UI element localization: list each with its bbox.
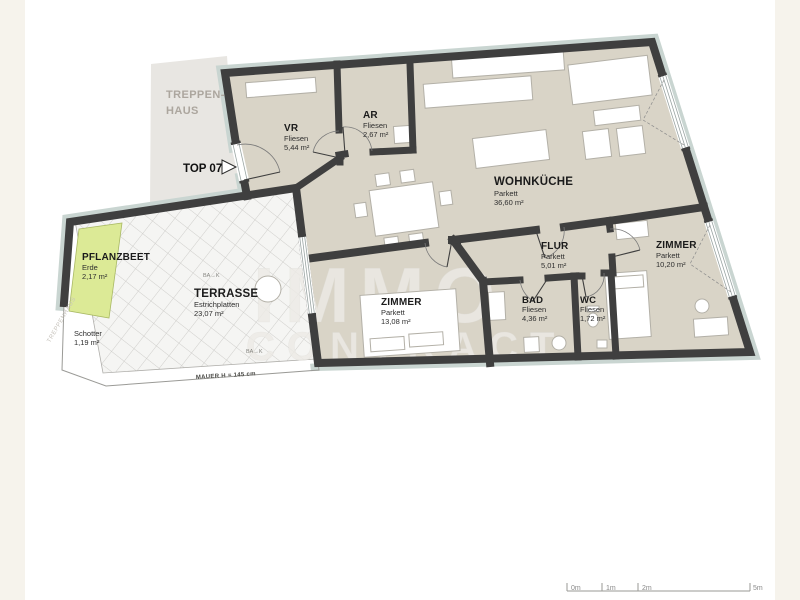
floor-plan: IMMO CONTRACT [0,0,800,600]
room-name: ZIMMER [656,240,697,251]
room-area: 36,60 m² [494,198,524,207]
room-material: Parkett [381,308,406,317]
room-area: 5,44 m² [284,143,310,152]
wall-bad-wc [574,276,578,357]
room-name: PFLANZBEET [82,252,150,263]
room-name: FLUR [541,241,569,252]
wall-wc-zimmer [611,273,616,356]
pillow [409,332,444,347]
room-name: Schotter [74,329,102,338]
room-area: 5,01 m² [541,261,567,270]
room-area: 2,67 m² [363,130,389,139]
room-area: 2,17 m² [82,272,108,281]
bath-sink [552,336,566,350]
dining-chair [400,169,416,183]
room-material: Fliesen [284,134,308,143]
unit-label: TOP 07 [183,163,222,175]
scale-tick-label: 0m [571,585,581,592]
wall-ar-right [410,64,413,150]
scale-tick-label: 5m [753,585,763,592]
washing-machine [524,337,540,353]
room-name: ZIMMER [381,297,422,308]
pillow [370,336,405,351]
armchair [616,126,645,157]
room-material: Parkett [656,251,681,260]
desk [693,317,728,337]
dining-chair [439,190,453,206]
wc-sink [597,340,607,348]
room-name: WOHNKÜCHE [494,175,573,188]
desk-chair [695,299,709,313]
dining-table [369,182,439,236]
room-label-schotter: Schotter 1,19 m² [74,329,102,347]
scale-tick-label: 2m [642,585,652,592]
room-name: AR [363,110,378,121]
staircase-label-line2: HAUS [166,105,199,117]
dining-chair [354,202,368,218]
room-material: Erde [82,263,98,272]
room-material: Fliesen [522,305,546,314]
room-material: Parkett [494,189,519,198]
floorplan-page: IMMO CONTRACT [0,0,800,600]
scale-tick-label: 1m [606,585,616,592]
floor-drain-annotation: BA→K [203,273,220,279]
shower [488,292,505,321]
room-area: 13,08 m² [381,317,411,326]
staircase-label-line1: TREPPEN- [166,89,225,101]
room-area: 1,19 m² [74,338,100,347]
right-margin-band [775,0,800,600]
dining-chair [375,173,391,187]
left-margin-band [0,0,25,600]
room-material: Fliesen [580,305,604,314]
room-area: 10,20 m² [656,260,686,269]
armchair [582,129,611,160]
room-area: 4,36 m² [522,314,548,323]
terrace-table [255,276,281,302]
room-name: VR [284,123,299,134]
room-area: 1,72 m² [580,314,606,323]
room-material: Fliesen [363,121,387,130]
room-material: Parkett [541,252,566,261]
room-material: Estrichplatten [194,300,239,309]
room-area: 23,07 m² [194,309,224,318]
floor-drain-annotation: BA→K [246,349,263,355]
room-name: TERRASSE [194,288,258,300]
